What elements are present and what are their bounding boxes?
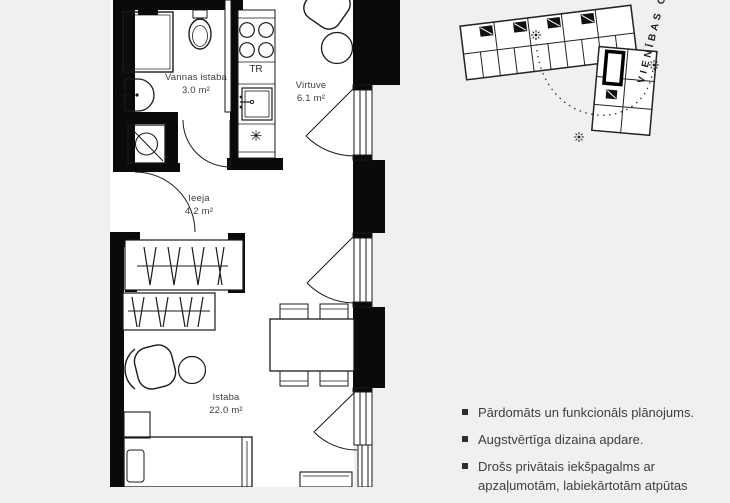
highlight-text: Pārdomāts un funkcionāls plānojums. <box>478 403 710 422</box>
room-area: 22.0 m² <box>190 405 262 417</box>
sun-icon <box>574 132 584 142</box>
room-area: 6.1 m² <box>276 93 346 105</box>
dining-table-icon <box>270 319 354 371</box>
real-estate-plan-page: Vannas istaba 3.0 m² Virtuve 6.1 m² Ieej… <box>0 0 730 487</box>
room-name: Virtuve <box>276 80 346 92</box>
windows <box>353 85 372 487</box>
highlight-text: Drošs privātais iekšpagalms ar apzaļumot… <box>478 457 710 495</box>
list-item: Augstvērtīga dizaina apdare. <box>462 430 712 449</box>
room-label-kitchen: Virtuve 6.1 m² <box>276 80 346 105</box>
site-plan <box>455 0 705 170</box>
highlighted-apartment <box>604 51 624 84</box>
highlight-text: Augstvērtīga dizaina apdare. <box>478 430 710 449</box>
wardrobe-2 <box>123 293 215 330</box>
room-label-bathroom: Vannas istaba 3.0 m² <box>159 72 233 97</box>
room-name: Ieeja <box>165 193 233 205</box>
room-label-room: Istaba 22.0 m² <box>190 392 262 417</box>
room-area: 3.0 m² <box>159 85 233 97</box>
balcony-door-window <box>353 388 372 445</box>
towel-dryer-label: TR <box>238 64 274 75</box>
list-item: Pārdomāts un funkcionāls plānojums. <box>462 403 712 422</box>
lower-glazing <box>358 445 372 487</box>
room-window <box>353 233 372 307</box>
kitchen-window <box>353 85 372 160</box>
room-label-entry: Ieeja 4.2 m² <box>165 193 233 218</box>
room-name: Vannas istaba <box>159 72 233 84</box>
fridge-icon: ✳ <box>238 127 274 145</box>
list-item: Drošs privātais iekšpagalms ar apzaļumot… <box>462 457 712 495</box>
bullet-square-icon <box>462 409 468 415</box>
room-area: 4.2 m² <box>165 206 233 218</box>
room-name: Istaba <box>190 392 262 404</box>
wardrobe-1 <box>125 240 243 290</box>
bullet-square-icon <box>462 436 468 442</box>
bullet-square-icon <box>462 463 468 469</box>
highlights-list: Pārdomāts un funkcionāls plānojums. Augs… <box>462 403 712 503</box>
